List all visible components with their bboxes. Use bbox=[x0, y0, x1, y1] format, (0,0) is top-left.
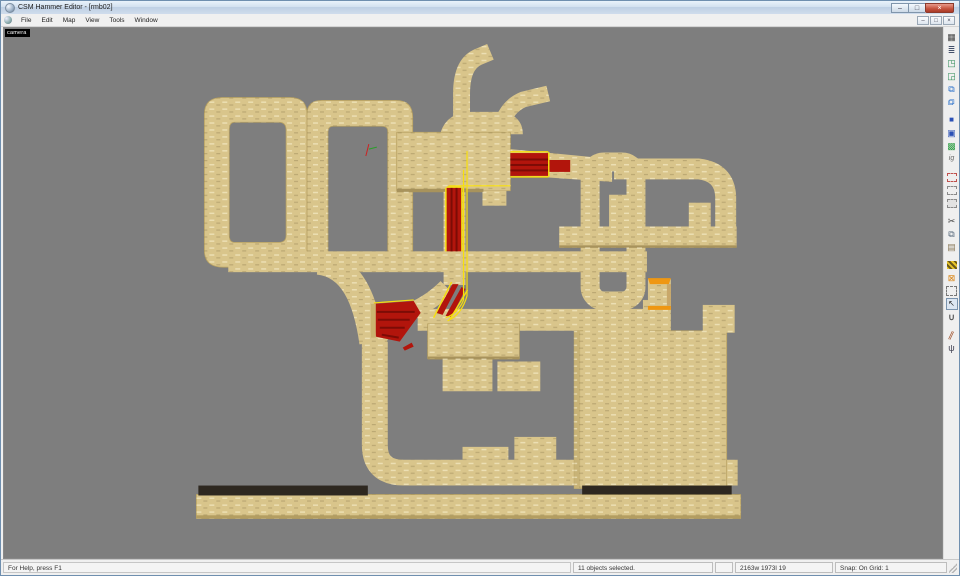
viewport-camera-label[interactable]: camera bbox=[5, 29, 30, 37]
mdi-close-button[interactable]: × bbox=[943, 16, 955, 25]
document-icon[interactable] bbox=[4, 16, 12, 24]
menu-file[interactable]: File bbox=[16, 16, 36, 25]
menu-tools[interactable]: Tools bbox=[104, 16, 129, 25]
menu-map[interactable]: Map bbox=[58, 16, 81, 25]
window-title: CSM Hammer Editor - [rmb02] bbox=[18, 4, 113, 11]
grid-toggle-icon[interactable]: ▦ bbox=[945, 31, 959, 43]
hide-selected-icon[interactable] bbox=[945, 171, 959, 183]
clip-tool-icon[interactable]: ∥ bbox=[945, 329, 959, 341]
paste-icon[interactable]: ▤ bbox=[945, 241, 959, 253]
status-selection-count: 11 objects selected. bbox=[573, 562, 713, 573]
platform-dark-top bbox=[198, 486, 367, 496]
layer-stack-icon[interactable]: ≣ bbox=[945, 44, 959, 56]
selection-bounds-icon[interactable] bbox=[945, 285, 959, 297]
title-bar[interactable]: CSM Hammer Editor - [rmb02] – □ × bbox=[1, 1, 959, 14]
restore-button[interactable]: □ bbox=[908, 3, 925, 13]
menu-bar: File Edit Map View Tools Window – □ × bbox=[1, 14, 959, 27]
cube-entity-icon[interactable]: ▣ bbox=[945, 127, 959, 139]
status-snap-grid: Snap: On Grid: 1 bbox=[835, 562, 947, 573]
magnet-icon[interactable]: ∪ bbox=[945, 311, 959, 323]
ignore-groups-icon[interactable]: ig bbox=[945, 153, 959, 165]
status-help-text: For Help, press F1 bbox=[3, 562, 571, 573]
pointer-tool-icon[interactable]: ↖ bbox=[945, 298, 959, 310]
carve-icon[interactable] bbox=[945, 259, 959, 271]
resize-grip[interactable] bbox=[949, 562, 957, 573]
menu-edit[interactable]: Edit bbox=[36, 16, 57, 25]
mdi-restore-button[interactable]: □ bbox=[930, 16, 942, 25]
texture-lock-icon[interactable]: ◳ bbox=[945, 57, 959, 69]
3d-map-canvas[interactable] bbox=[4, 28, 942, 558]
minimize-button[interactable]: – bbox=[891, 3, 908, 13]
group-icon[interactable]: ⧉ bbox=[945, 83, 959, 95]
menu-view[interactable]: View bbox=[80, 16, 104, 25]
show-hidden-icon[interactable] bbox=[945, 197, 959, 209]
mdi-minimize-button[interactable]: – bbox=[917, 16, 929, 25]
ungroup-icon[interactable]: ⧉ bbox=[945, 96, 959, 108]
status-empty-panel bbox=[715, 562, 733, 573]
cube-select-icon[interactable]: ▩ bbox=[945, 140, 959, 152]
right-toolbar: ▦≣◳◲⧉⧉■▣▩ig✂⧉▤⊠↖∪∥ψ bbox=[943, 27, 959, 559]
status-bar: For Help, press F1 11 objects selected. … bbox=[1, 559, 959, 575]
close-button[interactable]: × bbox=[925, 3, 954, 13]
vertex-tool-icon[interactable]: ψ bbox=[945, 342, 959, 354]
status-dimensions: 2163w 1973l 19 bbox=[735, 562, 833, 573]
app-window: CSM Hammer Editor - [rmb02] – □ × File E… bbox=[0, 0, 960, 576]
copy-icon[interactable]: ⧉ bbox=[945, 228, 959, 240]
texture-shift-lock-icon[interactable]: ◲ bbox=[945, 70, 959, 82]
hollow-icon[interactable]: ⊠ bbox=[945, 272, 959, 284]
workspace: camera ▦≣◳◲⧉⧉■▣▩ig✂⧉▤⊠↖∪∥ψ bbox=[1, 27, 959, 559]
cut-icon[interactable]: ✂ bbox=[945, 215, 959, 227]
camera-viewport[interactable]: camera bbox=[3, 27, 943, 559]
app-icon bbox=[5, 3, 15, 13]
cube-world-icon[interactable]: ■ bbox=[945, 114, 959, 126]
hide-unselected-icon[interactable] bbox=[945, 184, 959, 196]
menu-window[interactable]: Window bbox=[130, 16, 163, 25]
